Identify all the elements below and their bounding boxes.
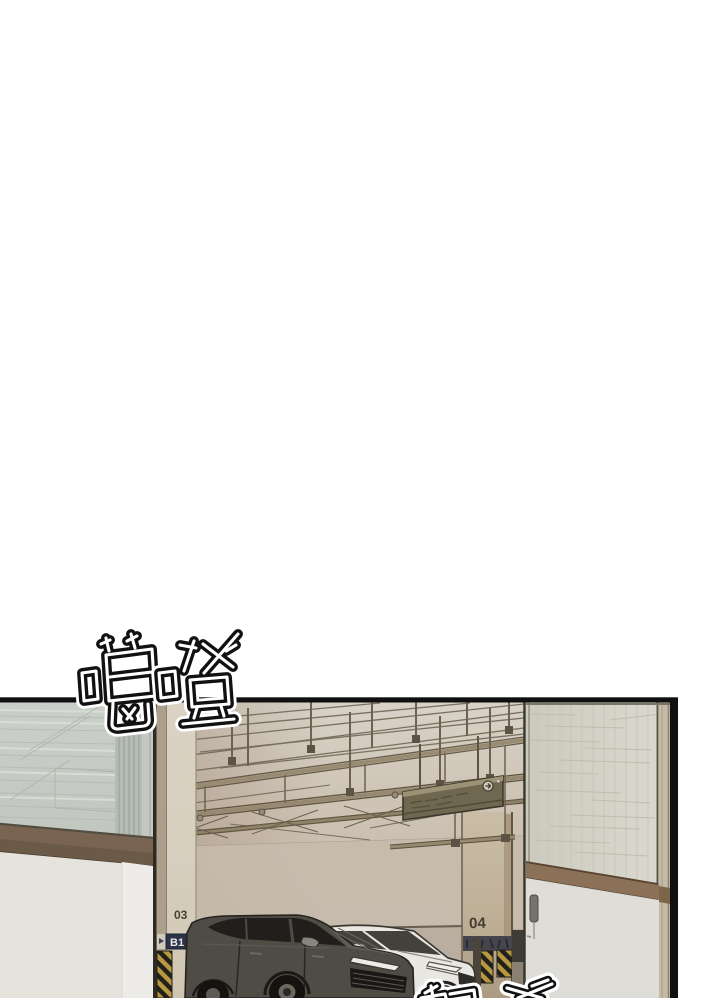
svg-text:B1: B1 — [170, 937, 184, 949]
svg-text:03: 03 — [174, 908, 188, 922]
svg-text:04: 04 — [469, 915, 487, 933]
